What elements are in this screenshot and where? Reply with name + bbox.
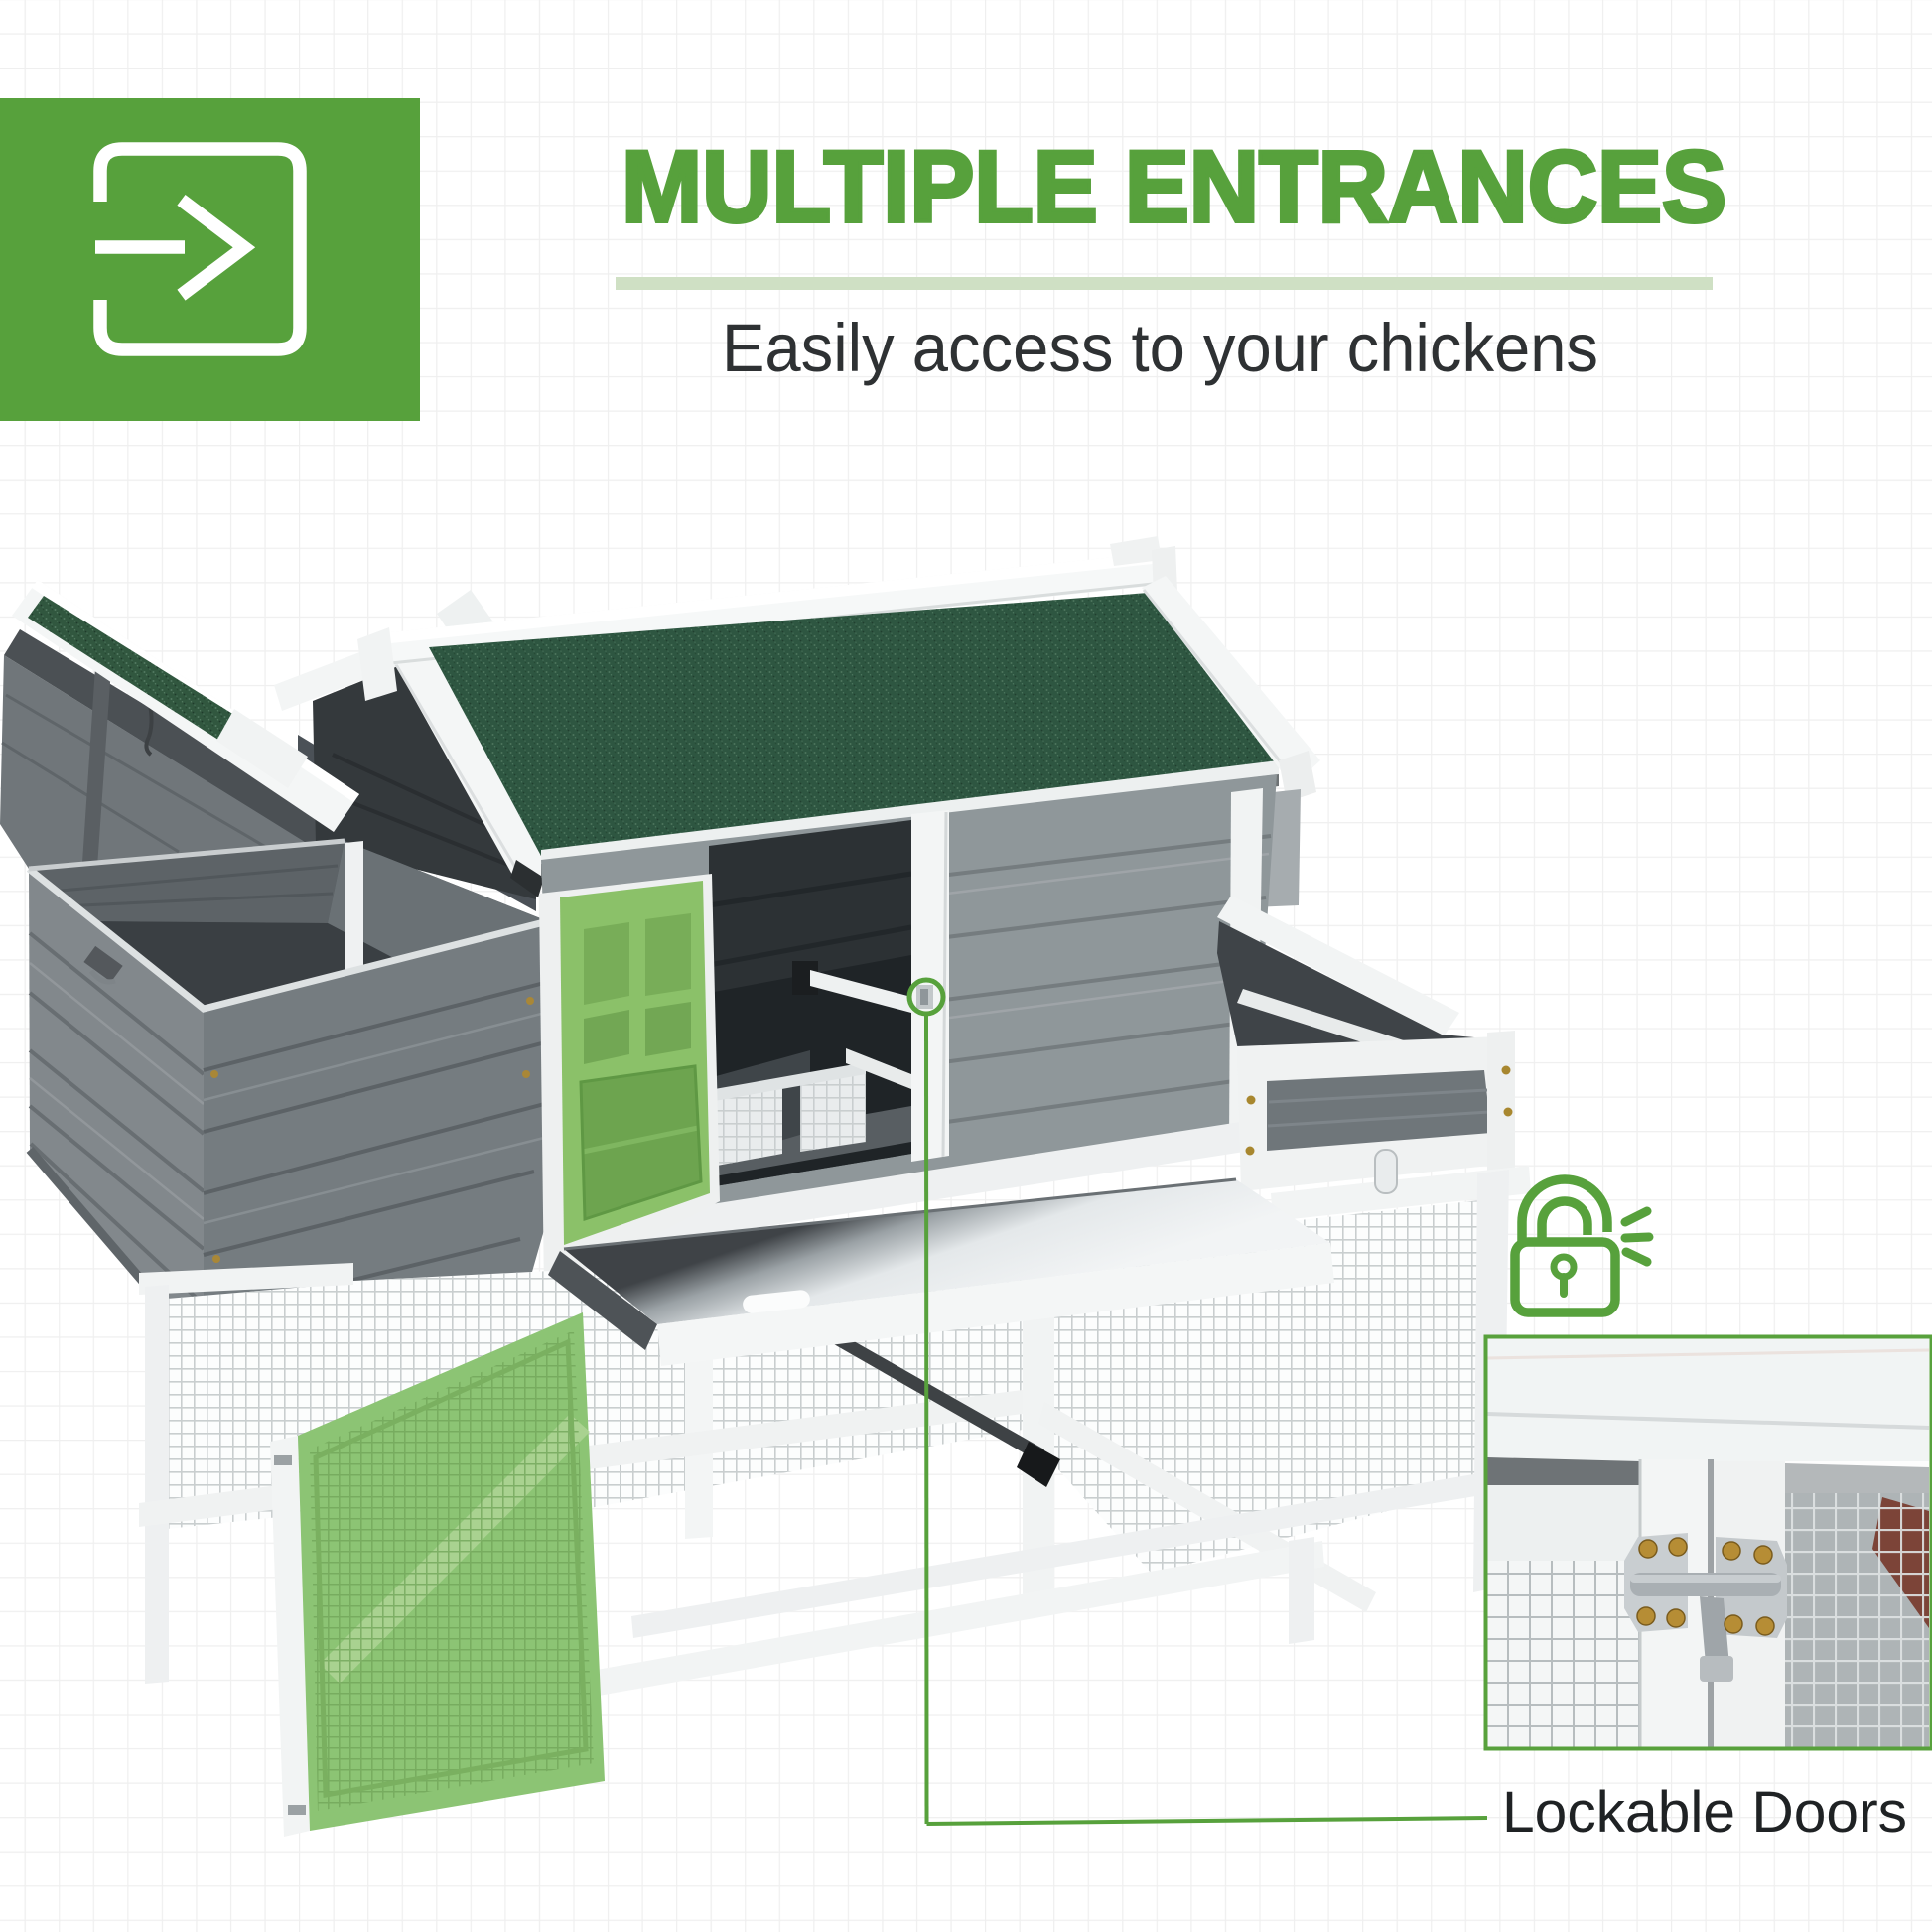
svg-text:Lockable Doors: Lockable Doors	[1502, 1780, 1907, 1845]
svg-text:MULTIPLE ENTRANCES: MULTIPLE ENTRANCES	[621, 130, 1726, 243]
svg-text:Easily access to your chickens: Easily access to your chickens	[722, 310, 1598, 386]
